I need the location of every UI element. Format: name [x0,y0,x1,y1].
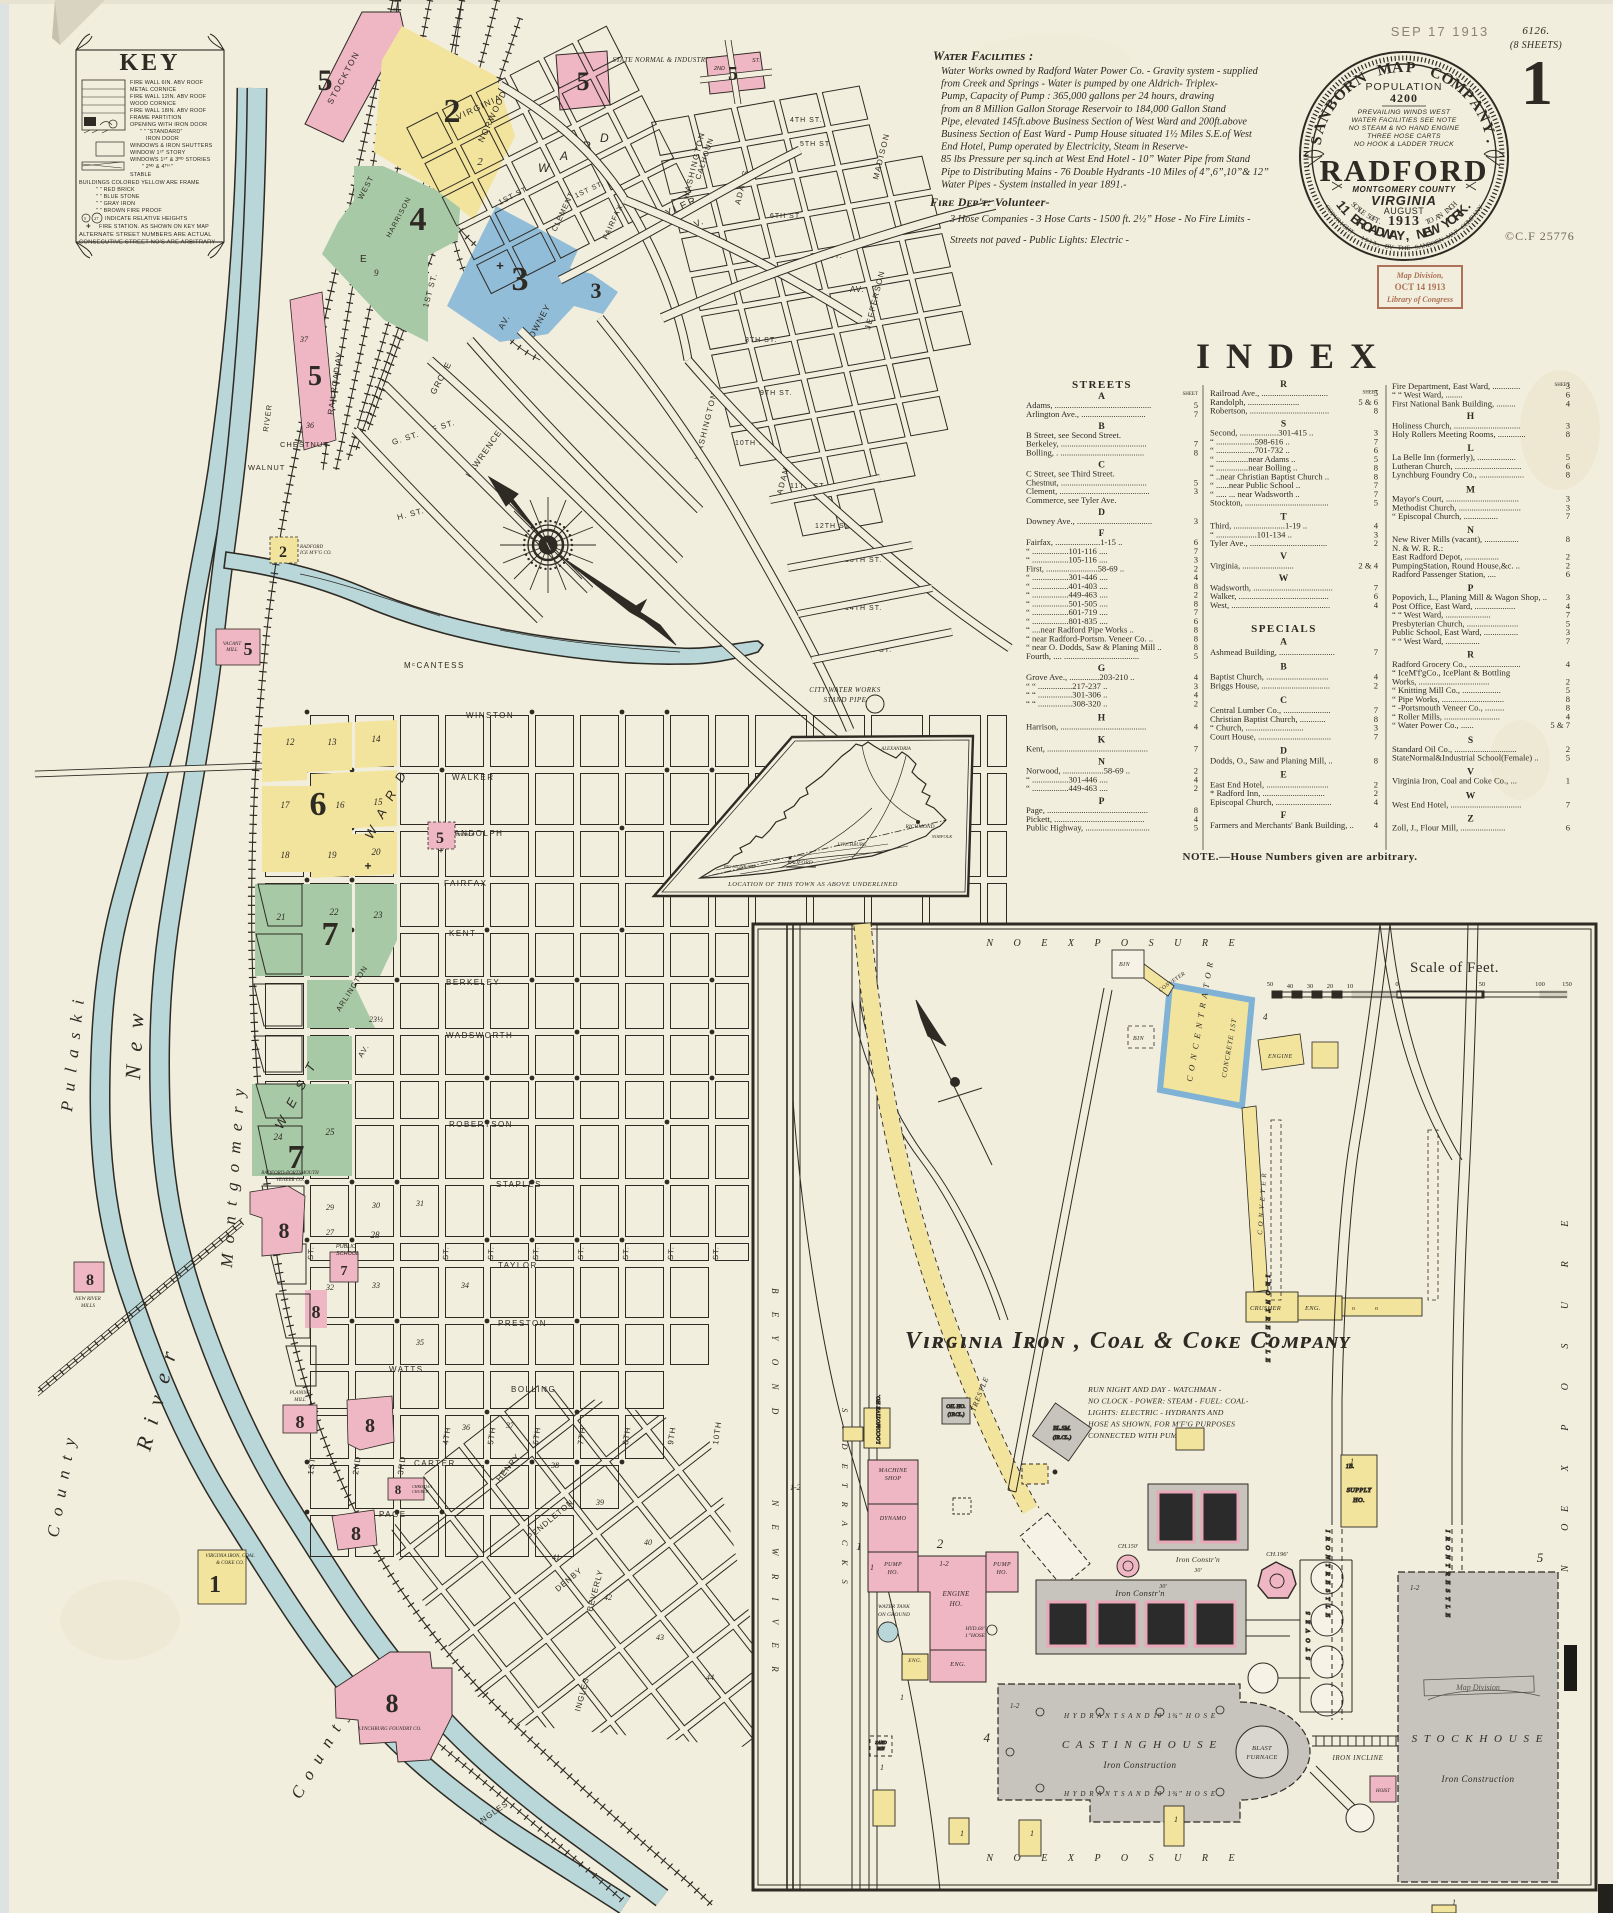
svg-text:HYD.60': HYD.60' [964,1626,985,1632]
svg-text:6126.: 6126. [1522,25,1549,37]
svg-text:Iron Constr'n: Iron Constr'n [1175,1555,1220,1564]
svg-text:LYNCHBURG FOUNDRY CO.: LYNCHBURG FOUNDRY CO. [358,1727,422,1732]
svg-text:ST.: ST. [576,1246,585,1260]
svg-text:PUMP: PUMP [992,1562,1011,1568]
svg-text:1: 1 [1566,776,1570,786]
svg-text:Water Pipes - System installed: Water Pipes - System installed in year 1… [941,179,1127,190]
svg-text:5: 5 [436,830,444,847]
svg-text:Fourth, .... .................: Fourth, .... ...........................… [1026,651,1139,661]
svg-text:ICE M'F'G CO.: ICE M'F'G CO. [299,551,332,556]
svg-text:ALTERNATE STREET NUMBERS ARE A: ALTERNATE STREET NUMBERS ARE ACTUAL [79,232,212,238]
svg-text:First National Bank Building,: First National Bank Building, ......... [1392,398,1516,408]
svg-text:5: 5 [1194,651,1198,661]
svg-text:I R O N T R E S T L E: I R O N T R E S T L E [1324,1529,1331,1619]
svg-text:E: E [1406,245,1410,252]
svg-text:BLAST: BLAST [1252,1745,1272,1752]
svg-text:ST.: ST. [486,1246,495,1260]
svg-text:VACANT: VACANT [223,642,242,647]
svg-text:30: 30 [1307,983,1314,990]
svg-text:5: 5 [244,639,253,659]
svg-text:39: 39 [595,1498,604,1507]
svg-text:,: , [1405,228,1409,243]
svg-text:N O: N O [1560,1508,1571,1573]
svg-text:WATTS: WATTS [389,1365,424,1374]
svg-text:©C.F 25776: ©C.F 25776 [1505,229,1575,243]
svg-text:Pipe to Distributing Mains -: Pipe to Distributing Mains - 76 Double H… [940,167,1269,178]
svg-text:Vɪʀɢɪɴɪᴀ Iʀᴏɴ , Cᴏᴀʟ &: Vɪʀɢɪɴɪᴀ Iʀᴏɴ , Cᴏᴀʟ & Cᴏᴋᴇ Cᴏᴍᴘᴀɴʏ [905,1328,1351,1354]
svg-text:“ .................449-46: “ .................449-463 .... [1026,783,1108,793]
svg-text:42: 42 [604,1593,612,1602]
svg-text:19: 19 [328,850,338,860]
svg-text:14: 14 [372,734,382,744]
svg-text:4: 4 [1374,820,1379,830]
svg-text:28: 28 [371,1230,381,1240]
svg-text:150: 150 [1562,981,1572,988]
svg-text:8: 8 [365,1415,375,1437]
svg-text:LYNCHBURG: LYNCHBURG [836,843,866,848]
svg-text:WALNUT: WALNUT [248,463,285,472]
svg-text:IRON INCLINE: IRON INCLINE [1332,1754,1384,1762]
svg-text:5: 5 [308,361,322,392]
svg-text:PUBLIC: PUBLIC [336,1244,356,1250]
svg-text:RADFORD: RADFORD [786,860,812,866]
svg-text:BIN: BIN [877,1746,885,1751]
svg-text:3: 3 [1194,516,1198,526]
svg-text:RADFORD-PORTSMOUTH: RADFORD-PORTSMOUTH [260,1171,319,1176]
svg-text:OPENING WITH IRON DOOR: OPENING WITH IRON DOOR [130,122,207,128]
svg-text:RUN NIGHT AND DAY - WATCHMAN -: RUN NIGHT AND DAY - WATCHMAN - [1087,1385,1222,1394]
svg-text:43: 43 [656,1633,664,1642]
svg-text:& COKE CO.: & COKE CO. [216,1561,244,1566]
svg-text:ST.: ST. [621,1246,630,1260]
svg-text:37: 37 [505,1421,515,1430]
svg-text:WINDOWS & IRON SHUTTERS: WINDOWS & IRON SHUTTERS [130,143,213,149]
svg-text:ENGINE: ENGINE [941,1590,969,1598]
svg-text:from an 8 Million Gallon Stor: from an 8 Million Gallon Storage Reservo… [941,104,1227,115]
svg-text:HOIST: HOIST [1375,1789,1391,1794]
svg-text:32: 32 [325,1283,334,1292]
svg-text:ENGINE: ENGINE [1267,1054,1293,1060]
svg-text:RADFORD: RADFORD [1320,153,1489,188]
svg-text:PAGE: PAGE [379,1510,407,1519]
svg-text:ST.: ST. [752,58,760,64]
svg-text:WATER TANK: WATER TANK [878,1604,910,1610]
svg-text:“ “ ................308: “ “ ................308-320 .. [1026,698,1107,708]
svg-text:RADFORD: RADFORD [299,545,323,550]
svg-text:HO.: HO. [886,1570,898,1576]
svg-text:Holy Rollers Meeting Rooms, ..: Holy Rollers Meeting Rooms, ............… [1392,429,1526,439]
svg-text:CH.150': CH.150' [1118,1544,1139,1550]
svg-text:1: 1 [960,1829,964,1838]
svg-text:MᶜCANTESS: MᶜCANTESS [404,661,465,670]
svg-text:4: 4 [1566,398,1571,408]
svg-text:WINDOW 1ˢᵀ STORY: WINDOW 1ˢᵀ STORY [130,150,186,156]
svg-text:Robertson, ...................: Robertson, .............................… [1210,406,1329,416]
svg-text:Stockton, ....................: Stockton, ..............................… [1210,498,1329,508]
svg-text:WATER FACILITIES SEE NOTE: WATER FACILITIES SEE NOTE [1351,117,1456,124]
svg-text:IRON DOOR: IRON DOOR [146,136,179,142]
svg-text:CITY WATER WORKS: CITY WATER WORKS [809,686,880,694]
svg-text:4: 4 [1374,600,1379,610]
svg-text:SPECIALS: SPECIALS [1251,623,1317,635]
svg-text:25: 25 [326,1127,336,1137]
svg-text:CHURCH: CHURCH [456,832,475,837]
svg-text:9TH ST.: 9TH ST. [760,390,792,397]
svg-text:7: 7 [322,916,339,953]
svg-text:FIRE WALL 18IN. ABV ROOF: FIRE WALL 18IN. ABV ROOF [130,108,207,114]
svg-text:36: 36 [461,1423,470,1432]
svg-text:End Hotel, Pump operated by El: End Hotel, Pump operated by Electricity,… [940,142,1189,153]
svg-text:Briggs House, ................: Briggs House, ..........................… [1210,680,1330,690]
svg-text:SUPPLY: SUPPLY [1347,1487,1373,1494]
svg-text:Radford Passenger Station, ...: Radford Passenger Station, .... [1392,569,1496,579]
svg-text:34: 34 [460,1281,469,1290]
svg-text:StateNormal&Industrial School(: StateNormal&Industrial School(Female) .. [1392,753,1539,763]
svg-text:INDICATE RELATIVE HEIGHTS: INDICATE RELATIVE HEIGHTS [105,216,188,222]
svg-text:+: + [364,859,371,873]
svg-text:Iron Construction: Iron Construction [1441,1774,1515,1784]
svg-text:ENG.: ENG. [1304,1305,1321,1312]
svg-text:WADSWORTH: WADSWORTH [446,1031,513,1040]
svg-text:SCHOOL: SCHOOL [336,1251,359,1257]
svg-text:Downey Ave., .................: Downey Ave., ...........................… [1026,516,1152,526]
svg-text:12: 12 [286,737,296,747]
svg-text:Lynchburg Foundry Co., .......: Lynchburg Foundry Co., .................… [1392,470,1524,480]
svg-text:BIG STONE GAP: BIG STONE GAP [724,864,756,869]
svg-text:ST.: ST. [666,1246,675,1260]
svg-text:13: 13 [328,737,338,747]
svg-text:Pump, Capacity of Pump : 365,0: Pump, Capacity of Pump : 365,000 gallons… [940,91,1214,102]
svg-text:8: 8 [395,1482,402,1497]
svg-text:FIRE STATION. AS SHOWN ON KEY: FIRE STATION. AS SHOWN ON KEY MAP [99,224,209,230]
svg-text:27: 27 [94,216,99,221]
svg-text:100: 100 [1535,981,1545,988]
svg-text:7: 7 [1374,647,1379,657]
svg-text:5 & 7: 5 & 7 [1550,720,1570,730]
svg-text:W: W [538,161,551,175]
svg-text:1: 1 [1521,47,1553,118]
svg-text:1913: 1913 [1388,214,1420,229]
svg-text:STAPLES: STAPLES [496,1180,542,1189]
svg-text:ROBERTSON: ROBERTSON [449,1120,513,1129]
svg-text:BERKELEY: BERKELEY [446,978,500,987]
svg-text:Wᴀᴛᴇʀ Fᴀᴄɪʟɪᴛɪᴇs :: Wᴀᴛᴇʀ Fᴀᴄɪʟɪᴛɪᴇs : [933,49,1033,63]
svg-text:West, ........................: West, ..................................… [1210,600,1330,610]
svg-text:NEW RIVER: NEW RIVER [74,1297,101,1302]
svg-text:SHEET: SHEET [1182,392,1198,397]
svg-text:1: 1 [1452,1898,1456,1907]
svg-text:" " BLUE: " " BLUE STONE [96,194,140,200]
svg-text:7: 7 [1194,743,1199,753]
svg-text:8: 8 [1566,534,1570,544]
svg-text:2: 2 [279,544,287,561]
svg-text:Ashmead Building, ............: Ashmead Building, ......................… [1210,647,1335,657]
svg-text:NOTE.—House Numbers given are: NOTE.—House Numbers given are arbitrary. [1183,851,1418,863]
svg-text:N E W R I V E R: N E W R I V E R [770,1499,780,1680]
svg-text:+: + [86,222,91,231]
svg-text:36: 36 [305,421,314,430]
svg-text:8: 8 [1194,447,1198,457]
svg-text:PLANING: PLANING [289,1391,311,1396]
svg-text:4: 4 [1566,659,1571,669]
svg-text:30: 30 [371,1201,380,1210]
svg-text:WINDOWS 1ˢᵀ & 3ᴿᴰ STORIES: WINDOWS 1ˢᵀ & 3ᴿᴰ STORIES [130,157,211,163]
svg-text:BIN: BIN [1133,1036,1145,1042]
svg-text:OCT 14 1913: OCT 14 1913 [1395,282,1446,292]
svg-text:HO.: HO. [995,1570,1007,1576]
svg-text:Harrison, ....................: Harrison, ..............................… [1026,721,1146,731]
svg-text:ST.: ST. [306,1246,315,1260]
svg-text:2ND: 2ND [713,66,725,72]
svg-text:3: 3 [1194,486,1198,496]
svg-text:E X P O S U R E: E X P O S U R E [1560,1205,1571,1513]
svg-text:5: 5 [1566,753,1570,763]
svg-text:FURNACE: FURNACE [1245,1754,1277,1761]
svg-text:BOLLING: BOLLING [511,1385,556,1394]
svg-text:Business Section of East Ward: Business Section of East Ward - Pump Hou… [941,129,1253,140]
svg-text:NORFOLK: NORFOLK [931,834,954,839]
svg-text:5: 5 [1374,498,1378,508]
svg-text:23: 23 [374,910,384,920]
svg-text:33: 33 [371,1281,380,1290]
svg-text:30': 30' [1193,1568,1202,1574]
svg-text:1: 1 [870,1563,874,1572]
svg-text:VENEER CO.: VENEER CO. [276,1178,304,1183]
svg-text:50: 50 [1267,981,1274,988]
svg-text:2 & 4: 2 & 4 [1358,560,1378,570]
svg-text:ALEXANDRIA: ALEXANDRIA [880,747,912,752]
svg-text:29: 29 [326,1203,334,1212]
svg-text:CARTER: CARTER [414,1459,456,1468]
svg-text:2: 2 [1194,783,1198,793]
svg-text:ENG.: ENG. [907,1658,922,1664]
svg-text:BUILDINGS COLORED YELLOW ARE F: BUILDINGS COLORED YELLOW ARE FRAME [79,180,200,186]
svg-text:35: 35 [415,1338,424,1347]
svg-text:Virginia, ....................: Virginia, ........................ [1210,560,1294,570]
svg-text:MACHINE: MACHINE [878,1468,908,1474]
svg-text:CHESTNUT: CHESTNUT [280,440,329,449]
svg-text:BIN: BIN [1119,962,1131,968]
svg-text:Y: Y [1396,228,1406,243]
svg-text:1-2: 1-2 [1010,1702,1020,1710]
svg-text:1: 1 [880,1763,884,1772]
svg-text:Virginia Iron, Coal and Coke C: Virginia Iron, Coal and Coke Co., ... [1392,776,1517,786]
svg-text:6: 6 [1566,823,1571,833]
svg-text:FIRE WALL 12IN. ABV ROOF: FIRE WALL 12IN. ABV ROOF [130,94,207,100]
svg-text:THREE HOSE CARTS: THREE HOSE CARTS [1367,133,1441,140]
svg-text:S T O C K H O U S E: S T O C K H O U S E [1412,1733,1545,1745]
svg-text:2: 2 [937,1536,944,1551]
svg-text:1: 1 [1174,1815,1178,1824]
svg-text:Episcopal Church, ............: Episcopal Church, ......................… [1210,797,1332,807]
svg-text:STREETS: STREETS [1072,379,1132,391]
svg-text:1-2: 1-2 [790,1483,801,1492]
svg-text:LIGHTS: ELECTRIC - HYDRANTS AN: LIGHTS: ELECTRIC - HYDRANTS AND [1087,1408,1224,1417]
svg-text:1: 1 [900,1693,904,1702]
svg-text:LOCATION OF THIS TOWN AS ABOVE: LOCATION OF THIS TOWN AS ABOVE UNDERLINE… [727,881,898,888]
svg-text:9: 9 [374,268,379,278]
svg-text:SAND: SAND [875,1740,887,1745]
svg-text:27: 27 [326,1228,335,1237]
svg-text:MILL: MILL [293,1398,306,1403]
svg-text:1: 1 [209,1572,221,1598]
svg-text:3: 3 [512,261,529,298]
svg-text:37: 37 [299,335,309,344]
svg-text:Pipe, elevated 145ft.above Bus: Pipe, elevated 145ft.above Business Sect… [940,116,1247,127]
svg-text:N O E X P O S U R E: N O E X P O S U R E [985,938,1243,949]
svg-text:24: 24 [274,1132,284,1142]
svg-text:4: 4 [1374,797,1379,807]
svg-text:ST.: ST. [441,1246,450,1260]
svg-text:NO STEAM & NO HAND ENGINE: NO STEAM & NO HAND ENGINE [1349,125,1460,132]
svg-text:2: 2 [1374,538,1378,548]
svg-text:H Y D R A N T S A N D: H Y D R A N T S A N D 10' 1¾” H O S E [1063,1712,1216,1720]
svg-text:7: 7 [1374,731,1379,741]
svg-text:1-2: 1-2 [1410,1584,1420,1592]
svg-text:4: 4 [410,201,427,238]
svg-text:8: 8 [351,1523,361,1545]
svg-text:7: 7 [1566,636,1571,646]
svg-text:40: 40 [644,1538,652,1547]
svg-text:Water Works owned by Radford W: Water Works owned by Radford Water Power… [941,66,1259,77]
svg-text:RICHMOND: RICHMOND [904,824,934,830]
svg-text:41: 41 [552,1553,560,1562]
svg-text:23½: 23½ [369,1015,383,1024]
svg-text:8: 8 [1566,429,1570,439]
svg-text:WALKER: WALKER [452,773,495,782]
svg-text:KEY: KEY [119,50,180,76]
svg-text:4TH ST.: 4TH ST. [790,117,822,124]
svg-text:FIRE WALL 6IN. ABV ROOF: FIRE WALL 6IN. ABV ROOF [130,80,204,86]
svg-text:E: E [360,254,367,265]
svg-text:2: 2 [1194,698,1198,708]
svg-text:Public Highway, ..............: Public Highway, ........................… [1026,823,1150,833]
svg-text:Map Division,: Map Division, [1396,271,1444,280]
svg-text:Fɪʀᴇ Dᴇᴘ'ᴛ: Volunteer-: Fɪʀᴇ Dᴇᴘ'ᴛ: Volunteer- [929,195,1050,209]
svg-text:HO.: HO. [949,1600,963,1608]
svg-text:N e w: N e w [120,1009,149,1081]
svg-text:21: 21 [277,912,286,922]
svg-text:5: 5 [1194,823,1198,833]
svg-text:B E Y O N D: B E Y O N D [770,1288,780,1422]
svg-text:85 lbs Pressure per sq.inch a: 85 lbs Pressure per sq.inch at West End … [941,154,1251,165]
svg-text:o: o [1352,1306,1355,1312]
svg-text:P: P [1405,59,1416,77]
svg-text:8: 8 [296,1412,305,1432]
svg-text:4: 4 [984,1730,991,1745]
svg-text:D: D [600,131,609,145]
svg-text:A: A [559,149,568,163]
svg-text:3: 3 [591,278,602,303]
svg-text:C A S T I N G H O U S E: C A S T I N G H O U S E [1062,1739,1218,1751]
svg-text:KENT: KENT [449,929,476,938]
svg-text:A: A [1391,59,1404,77]
svg-text:“ Water Power Co., ......: “ Water Power Co., ...... [1392,720,1474,730]
svg-text:Court House, .................: Court House, ...........................… [1210,731,1331,741]
svg-text:2: 2 [477,156,483,168]
svg-text:+: + [439,846,444,855]
svg-text:31: 31 [415,1199,424,1208]
svg-text:30': 30' [1158,1584,1167,1590]
svg-text:BL.SM.: BL.SM. [1053,1426,1071,1432]
svg-text:PREVAILING WINDS WEST: PREVAILING WINDS WEST [1358,109,1451,116]
svg-text:HOSE AS SHOWN, FOR M'F'G PURPO: HOSE AS SHOWN, FOR M'F'G PURPOSES [1087,1420,1235,1429]
svg-text:+: + [496,258,504,273]
svg-text:8: 8 [1374,755,1378,765]
svg-text:FRAME PARTITION: FRAME PARTITION [130,115,182,121]
svg-text:S T O V E S: S T O V E S [1306,1610,1312,1660]
svg-text:6TH ST.: 6TH ST. [770,213,802,220]
svg-text:" " BROWN FI: " " BROWN FIRE PROOF [96,208,162,214]
svg-text:7: 7 [1566,800,1571,810]
svg-text:CHURCH: CHURCH [412,1489,430,1494]
svg-text:" " GRAY: " " GRAY IRON [96,201,135,207]
svg-text:7: 7 [1194,409,1199,419]
svg-text:Kent, ........................: Kent, ..................................… [1026,743,1148,753]
svg-text:Scale of Feet.: Scale of Feet. [1410,960,1499,976]
svg-text:5TH ST.: 5TH ST. [800,141,832,148]
svg-text:VIRGINIA IRON, COAL: VIRGINIA IRON, COAL [205,1554,254,1559]
svg-text:(IR.CL.): (IR.CL.) [1053,1434,1072,1441]
svg-text:H Y D R A N T S A N D 1: H Y D R A N T S A N D 10' 1¾” H O S E [1063,1790,1216,1798]
svg-text:STAND PIPE: STAND PIPE [824,696,867,704]
svg-text:Commerce, see Tyler Ave.: Commerce, see Tyler Ave. [1026,495,1116,505]
svg-text:4: 4 [1263,1012,1268,1022]
svg-text:7: 7 [1566,511,1571,521]
svg-text:10: 10 [1347,983,1354,990]
svg-text:FAIRFAX: FAIRFAX [444,879,487,888]
svg-text:WOOD CORNICE: WOOD CORNICE [130,101,176,107]
svg-text:Library of Congress: Library of Congress [1386,295,1453,304]
svg-text:CONSECUTIVE STREET NO'S ARE AR: CONSECUTIVE STREET NO'S ARE ARBITRARY [79,240,216,246]
svg-text:8: 8 [386,1689,399,1718]
svg-text:CH.196': CH.196' [1266,1551,1288,1558]
svg-text:8: 8 [86,1272,94,1289]
svg-text:NO CLOCK - POWER: STEAM - FUEL: NO CLOCK - POWER: STEAM - FUEL: COAL- [1087,1397,1249,1406]
svg-text:WINSTON: WINSTON [466,711,514,720]
svg-text:8: 8 [279,1218,290,1243]
svg-text:2: 2 [1374,680,1378,690]
svg-text:West End Hotel, ..............: West End Hotel, ........................… [1392,800,1521,810]
svg-text:Tyler Ave., ..................: Tyler Ave., ............................… [1210,538,1327,548]
svg-text:1: 1 [1350,1457,1354,1466]
svg-text:50: 50 [1479,981,1486,988]
svg-text:1: 1 [856,1539,862,1553]
svg-text:5: 5 [577,67,590,96]
svg-text:“ “ West Ward, ....: “ “ West Ward, ................ [1392,636,1480,646]
svg-text:5: 5 [728,63,738,85]
svg-text:I R O N T R E S T L E: I R O N T R E S T L E [1264,1274,1271,1364]
svg-text:Arlington Ave., ..............: Arlington Ave., ........................… [1026,409,1146,419]
svg-text:DYNAMO: DYNAMO [879,1516,907,1522]
svg-text:20: 20 [372,847,382,857]
svg-text:METAL CORNICE: METAL CORNICE [130,87,177,93]
svg-text:PUMP: PUMP [883,1562,902,1568]
svg-text:1: 1 [1030,1829,1034,1838]
svg-text:1-2: 1-2 [939,1560,949,1568]
svg-text:SHOP: SHOP [885,1476,902,1482]
svg-text:16: 16 [336,800,346,810]
svg-text:from Creek and Springs - Wate: from Creek and Springs - Water is pumped… [941,79,1219,90]
svg-text:ON GROUND: ON GROUND [878,1612,910,1618]
svg-text:Iron Constr'n: Iron Constr'n [1114,1588,1165,1598]
svg-text:Zoll, J., Flour Mill, .......: Zoll, J., Flour Mill, ..................… [1392,823,1505,833]
svg-text:ST.: ST. [531,1246,540,1260]
svg-text:6: 6 [310,786,327,823]
svg-text:40: 40 [1287,983,1294,990]
svg-text:44: 44 [706,1673,714,1682]
svg-text:SEP 17 1913: SEP 17 1913 [1391,24,1489,39]
